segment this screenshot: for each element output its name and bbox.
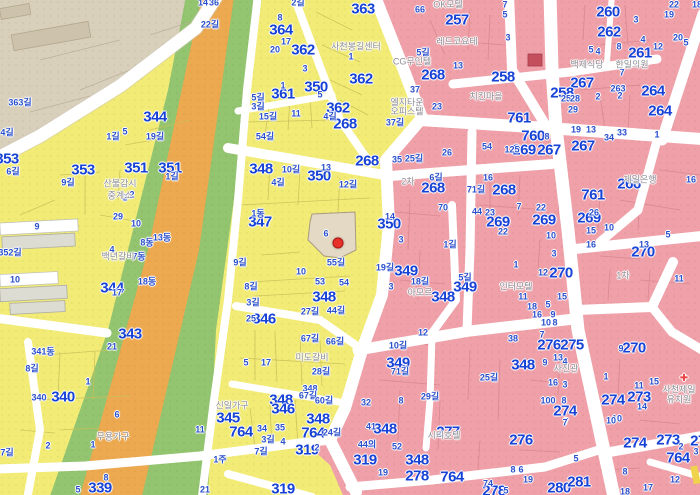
parcel-number-label: 41 xyxy=(366,423,376,432)
poi-label: 산불감시 xyxy=(103,180,136,189)
block-number-label: 275 xyxy=(560,338,584,353)
poi-label: 유치원 xyxy=(667,396,692,405)
block-number-label: 353 xyxy=(0,152,19,167)
parcel-number-label: 5 xyxy=(122,128,127,137)
parcel-number-label: 54 xyxy=(482,143,492,152)
poi-label: 제일은행 xyxy=(623,176,656,185)
parcel-number-label: 12 xyxy=(670,476,680,485)
parcel-number-label: 6 xyxy=(518,466,523,475)
road-name-label: 22길 xyxy=(201,21,219,30)
parcel-number-label: 8 xyxy=(277,14,282,23)
parcel-number-label: 3 xyxy=(693,448,698,457)
parcel-number-label: 20 xyxy=(270,46,280,55)
block-number-label: 264 xyxy=(641,84,665,99)
parcel-number-label: 28 xyxy=(570,95,580,104)
parcel-number-label: 1 xyxy=(280,82,285,91)
parcel-number-label: 10 xyxy=(541,319,551,328)
parcel-number-label: 5 xyxy=(665,231,670,240)
poi-label: OK모텔 xyxy=(433,1,463,10)
parcel-number-label: 3 xyxy=(505,34,510,43)
parcel-number-label: 44 xyxy=(472,208,482,217)
block-number-label: 764 xyxy=(229,425,253,440)
parcel-number-label: 7 xyxy=(562,419,567,428)
block-number-label: 346 xyxy=(271,402,295,417)
parcel-number-label: 6 xyxy=(323,230,328,239)
parcel-number-label: 6 xyxy=(114,411,119,420)
parcel-number-label: 2 xyxy=(45,442,50,451)
road-name-label: 9길 xyxy=(61,179,74,188)
road-name-label: 29길 xyxy=(421,393,439,402)
road-name-label: 1길 xyxy=(106,133,119,142)
block-number-label: 348 xyxy=(405,453,429,468)
parcel-number-label: 10 xyxy=(606,417,616,426)
parcel-number-label: 20 xyxy=(673,34,683,43)
parcel-number-label: 4 xyxy=(595,48,600,57)
parcel-number-label: 22 xyxy=(498,228,508,237)
block-number-label: 348 xyxy=(431,290,455,305)
poi-label: 1차 xyxy=(616,272,629,281)
parcel-number-label: 8 xyxy=(622,468,627,477)
poi-label: 오피스텔 xyxy=(390,108,423,117)
parcel-number-label: 5 xyxy=(502,11,507,20)
road-name-label: 352길 xyxy=(0,249,22,258)
parcel-number-label: 14 xyxy=(385,213,395,222)
parcel-number-label: 1 xyxy=(85,378,90,387)
block-number-label: 348 xyxy=(306,412,330,427)
road-name-label: 66길 xyxy=(326,338,344,347)
parcel-number-label: 70 xyxy=(438,204,448,213)
parcel-number-label: 7 xyxy=(539,331,544,340)
block-number-label: 268 xyxy=(355,154,379,169)
parcel-number-label: 11 xyxy=(195,426,205,435)
road-name-label: 55길 xyxy=(327,259,345,268)
parcel-number-label: 125 xyxy=(504,146,519,155)
parcel-number-label: 8동 xyxy=(140,239,153,248)
road-name-label: 6길 xyxy=(6,168,19,177)
parcel-number-label: 16 xyxy=(686,176,696,185)
block-number-label: 348 xyxy=(249,162,273,177)
road-name-label: 4길 xyxy=(0,129,13,138)
parcel-number-label: 18동 xyxy=(138,278,156,287)
poi-label: 사진관 xyxy=(554,365,579,374)
parcel-number-label: 13 xyxy=(321,164,331,173)
parcel-number-label: 38 xyxy=(508,335,518,344)
road-name-label: 3길 xyxy=(261,436,274,445)
poi-label: 사천제일 xyxy=(662,386,695,395)
parcel-number-label: 5 xyxy=(243,359,248,368)
parcel-number-label: 14 xyxy=(198,0,208,8)
parcel-number-label: 2 xyxy=(678,443,683,452)
block-number-label: 274 xyxy=(601,393,625,408)
parcel-number-label: 23 xyxy=(485,209,495,218)
block-number-label: 258 xyxy=(491,70,515,85)
poi-label: 아모르 xyxy=(408,289,433,298)
block-number-label: 353 xyxy=(71,163,95,178)
poi-label: 레드코요테 xyxy=(436,38,477,47)
block-number-label: 269 xyxy=(532,213,556,228)
parcel-number-label: 8 xyxy=(398,397,403,406)
parcel-number-label: 10 xyxy=(604,224,614,233)
parcel-number-label: 1 xyxy=(654,131,659,140)
road-name-label: 54길 xyxy=(256,133,274,142)
map-canvas[interactable]: 3533533513513443443433403393457647643633… xyxy=(0,0,700,495)
road-name-label: 6길 xyxy=(429,174,442,183)
poi-label: 2차 xyxy=(401,178,414,187)
parcel-number-label: 11 xyxy=(674,275,684,284)
block-number-label: 260 xyxy=(596,5,620,20)
block-number-label: 362 xyxy=(349,72,373,87)
block-number-label: 319 xyxy=(271,482,295,495)
block-number-label: 262 xyxy=(597,25,621,40)
parcel-number-label: 4 xyxy=(280,438,285,447)
parcel-number-label: 37 xyxy=(410,86,420,95)
poi-label: 중계소 xyxy=(108,192,133,201)
parcel-number-label: 54 xyxy=(339,279,349,288)
parcel-number-label: 1 xyxy=(513,261,518,270)
block-number-label: 343 xyxy=(118,327,142,342)
labels-layer: 3533533513513443443433403393457647643633… xyxy=(0,0,700,495)
road-name-label: 67길 xyxy=(301,335,319,344)
road-name-label: 10길 xyxy=(282,166,300,175)
parcel-number-label: 13 xyxy=(639,241,649,250)
road-name-label: 3길 xyxy=(246,299,259,308)
parcel-number-label: 23 xyxy=(432,103,442,112)
parcel-number-label: 35 xyxy=(392,156,402,165)
parcel-number-label: 29 xyxy=(113,213,123,222)
parcel-number-label: 340 xyxy=(31,394,46,403)
poi-label: 백년갈비 xyxy=(101,253,134,262)
parcel-number-label: 17 xyxy=(261,359,271,368)
parcel-number-label: 16 xyxy=(586,241,596,250)
parcel-number-label: 3 xyxy=(398,236,403,245)
parcel-number-label: 16 xyxy=(548,379,558,388)
parcel-number-label: 10 xyxy=(546,232,556,241)
block-number-label: 364 xyxy=(269,23,293,38)
block-number-label: 264 xyxy=(648,104,672,119)
road-name-label: 25길 xyxy=(405,155,423,164)
parcel-number-label: 1 xyxy=(603,373,608,382)
poi-label: 미도갈비 xyxy=(295,354,328,363)
parcel-number-label: 52 xyxy=(392,443,402,452)
road-name-label: 18길 xyxy=(411,278,429,287)
parcel-number-label: 34 xyxy=(604,134,614,143)
parcel-number-label: 32 xyxy=(361,399,371,408)
parcel-number-label: 15 xyxy=(557,293,567,302)
block-number-label: 267 xyxy=(571,139,595,154)
parcel-number-label: 13 xyxy=(453,62,463,71)
parcel-number-label: 7 xyxy=(516,203,521,212)
parcel-number-label: 7 xyxy=(619,69,624,78)
block-number-label: 764 xyxy=(440,470,464,485)
block-number-label: 261 xyxy=(628,46,652,61)
parcel-number-label: 18 xyxy=(692,1,700,10)
block-number-label: 764 xyxy=(301,426,325,441)
parcel-number-label: 53 xyxy=(315,278,325,287)
block-number-label: 348 xyxy=(373,422,397,437)
road-name-label: 5길 xyxy=(458,274,471,283)
parcel-number-label: 74 xyxy=(483,480,493,489)
block-number-label: 276 xyxy=(509,433,533,448)
parcel-number-label: 5 xyxy=(588,46,593,55)
parcel-number-label: 100 xyxy=(540,397,555,406)
block-number-label: 274 xyxy=(623,436,647,451)
parcel-number-label: 26 xyxy=(589,209,599,218)
road-name-label: 60길 xyxy=(315,397,333,406)
parcel-number-label: 15 xyxy=(649,378,659,387)
road-name-label: 7길 xyxy=(254,448,267,457)
parcel-number-label: 3 xyxy=(551,250,556,259)
parcel-number-label: 35 xyxy=(275,424,285,433)
parcel-number-label: 8 xyxy=(544,133,549,142)
poi-label: 무용가구 xyxy=(96,433,129,442)
parcel-number-label: 26 xyxy=(442,149,452,158)
road-name-label: 19길 xyxy=(376,264,394,273)
parcel-number-label: 9 xyxy=(34,223,39,232)
road-name-label: 37길 xyxy=(386,119,404,128)
parcel-number-label: 8 xyxy=(616,43,621,52)
parcel-number-label: 2 xyxy=(595,93,600,102)
parcel-number-label: 21 xyxy=(107,343,117,352)
parcel-number-label: 14 xyxy=(637,403,647,412)
parcel-number-label: 22 xyxy=(536,204,546,213)
road-name-label: 3길 xyxy=(251,103,264,112)
block-number-label: 276 xyxy=(537,338,561,353)
parcel-number-label: 15 xyxy=(586,227,596,236)
poi-label: 사천봉길센터 xyxy=(331,43,381,52)
parcel-number-label: 5 xyxy=(545,301,550,310)
block-number-label: 268 xyxy=(421,181,445,196)
parcel-number-label: 8 xyxy=(510,466,515,475)
block-number-label: 268 xyxy=(421,68,445,83)
road-name-label: 2길 xyxy=(291,0,304,8)
road-name-label: 25길 xyxy=(480,374,498,383)
parcel-number-label: 3 xyxy=(302,65,307,74)
road-name-label: 24길 xyxy=(323,429,341,438)
block-number-label: 268 xyxy=(333,117,357,132)
parcel-number-label: 44의 xyxy=(358,441,376,450)
parcel-number-label: 8 xyxy=(552,319,557,328)
road-name-label: 71길 xyxy=(391,368,409,377)
parcel-number-label: 11 xyxy=(518,293,528,302)
parcel-number-label: 18 xyxy=(620,488,630,495)
parcel-number-label: 11 xyxy=(634,382,644,391)
poi-label: 한일의원 xyxy=(615,61,648,70)
block-number-label: 764 xyxy=(666,451,690,466)
parcel-number-label: 8 xyxy=(103,474,108,483)
parcel-number-label: 33 xyxy=(617,129,627,138)
parcel-number-label: 5 xyxy=(683,39,688,48)
parcel-number-label: 3 xyxy=(388,283,393,292)
road-name-label: 8길 xyxy=(244,283,257,292)
block-number-label: 267 xyxy=(537,143,561,158)
parcel-number-label: 12 xyxy=(418,329,428,338)
block-number-label: 278 xyxy=(405,469,429,484)
poi-label: 시티호텔 xyxy=(427,432,460,441)
parcel-number-label: 1동 xyxy=(251,210,264,219)
block-number-label: 340 xyxy=(51,390,75,405)
parcel-number-label: 66 xyxy=(415,6,425,15)
parcel-number-label: 1주 xyxy=(213,456,226,465)
road-name-label: 9길 xyxy=(233,259,246,268)
block-number-label: 270 xyxy=(622,341,646,356)
parcel-number-label: 5 xyxy=(75,486,80,495)
parcel-number-label: 12 xyxy=(538,269,548,278)
parcel-number-label: 2 xyxy=(314,444,319,453)
parcel-number-label: 22 xyxy=(669,1,679,10)
block-number-label: 344 xyxy=(143,110,167,125)
road-name-label: 4길 xyxy=(271,179,284,188)
parcel-number-label: 10 xyxy=(296,268,306,277)
block-number-label: 268 xyxy=(492,183,516,198)
poi-label: 신일가구 xyxy=(215,402,248,411)
location-marker[interactable] xyxy=(333,238,344,249)
poi-label: 치킨마을 xyxy=(469,93,502,102)
block-number-label: 273 xyxy=(656,433,680,448)
parcel-number-label: 19 xyxy=(664,11,674,20)
block-number-label: 363 xyxy=(351,2,375,17)
parcel-number-label: 25 xyxy=(246,315,256,324)
parcel-number-label: 2 xyxy=(617,92,622,101)
parcel-number-label: 17 xyxy=(643,484,653,493)
block-number-label: 319 xyxy=(353,453,377,468)
block-number-label: 761 xyxy=(507,111,531,126)
block-number-label: 351 xyxy=(124,161,148,176)
road-name-label: 71길 xyxy=(467,186,485,195)
road-name-label: 44길 xyxy=(327,307,345,316)
poi-label: CG무인텔 xyxy=(393,58,431,67)
road-name-label: 363길 xyxy=(8,99,31,108)
block-number-label: 761 xyxy=(581,188,605,203)
parcel-number-label: 7 xyxy=(502,1,507,10)
parcel-number-label: 10 xyxy=(10,276,20,285)
block-number-label: 257 xyxy=(445,13,469,28)
road-name-label: 7길 xyxy=(0,449,13,458)
road-name-label: 4길 xyxy=(323,113,336,122)
hospital-cross-icon: ✚ xyxy=(680,374,688,384)
parcel-number-label: 13동 xyxy=(153,234,171,243)
parcel-number-label: 5 xyxy=(317,91,322,100)
road-name-label: 28길 xyxy=(312,368,330,377)
parcel-number-label: 34 xyxy=(257,425,267,434)
parcel-number-label: 5 xyxy=(573,455,578,464)
block-number-label: 362 xyxy=(291,43,315,58)
block-number-label: 348 xyxy=(511,358,535,373)
parcel-number-label: 9 xyxy=(618,345,623,354)
parcel-number-label: 19 xyxy=(571,126,581,135)
parcel-number-label: 3 xyxy=(633,16,638,25)
parcel-number-label: 19 xyxy=(523,476,533,485)
parcel-number-label: 4 xyxy=(640,36,645,45)
parcel-number-label: 36 xyxy=(209,0,219,8)
road-name-label: 1길 xyxy=(165,173,178,182)
road-name-label: 341동 xyxy=(31,348,54,357)
poi-label: 인터모텔 xyxy=(499,283,532,292)
block-number-label: 348 xyxy=(312,290,336,305)
block-number-label: 350 xyxy=(304,80,328,95)
road-name-label: 12길 xyxy=(339,181,357,190)
block-number-label: 339 xyxy=(88,481,112,495)
parcel-number-label: 17 xyxy=(112,289,122,298)
road-name-label: 15길 xyxy=(259,113,277,122)
parcel-number-label: 9 xyxy=(542,359,547,368)
parcel-number-label: 19 xyxy=(378,469,388,478)
parcel-number-label: 16 xyxy=(483,174,493,183)
parcel-number-label: 1 xyxy=(348,53,353,62)
road-name-label: 8길 xyxy=(25,365,38,374)
parcel-number-label: 13 xyxy=(586,126,596,135)
road-name-label: 19길 xyxy=(146,133,164,142)
parcel-number-label: 5 xyxy=(503,487,508,495)
parcel-number-label: 17 xyxy=(281,38,291,47)
parcel-number-label: 8 xyxy=(561,397,566,406)
road-name-label: 10길 xyxy=(389,342,407,351)
parcel-number-label: 12 xyxy=(653,43,663,52)
parcel-number-label: 1 xyxy=(90,441,95,450)
road-name-label: 27길 xyxy=(301,308,319,317)
block-number-label: 270 xyxy=(549,266,573,281)
block-number-label: 281 xyxy=(567,475,591,490)
parcel-number-label: 10 xyxy=(131,220,141,229)
parcel-number-label: 29 xyxy=(568,106,578,115)
parcel-number-label: 11 xyxy=(291,110,301,119)
parcel-number-label: 21 xyxy=(200,486,210,495)
parcel-number-label: 3 xyxy=(562,381,567,390)
poi-label: 백제식당 xyxy=(570,61,603,70)
road-name-label: 1길 xyxy=(443,241,456,250)
